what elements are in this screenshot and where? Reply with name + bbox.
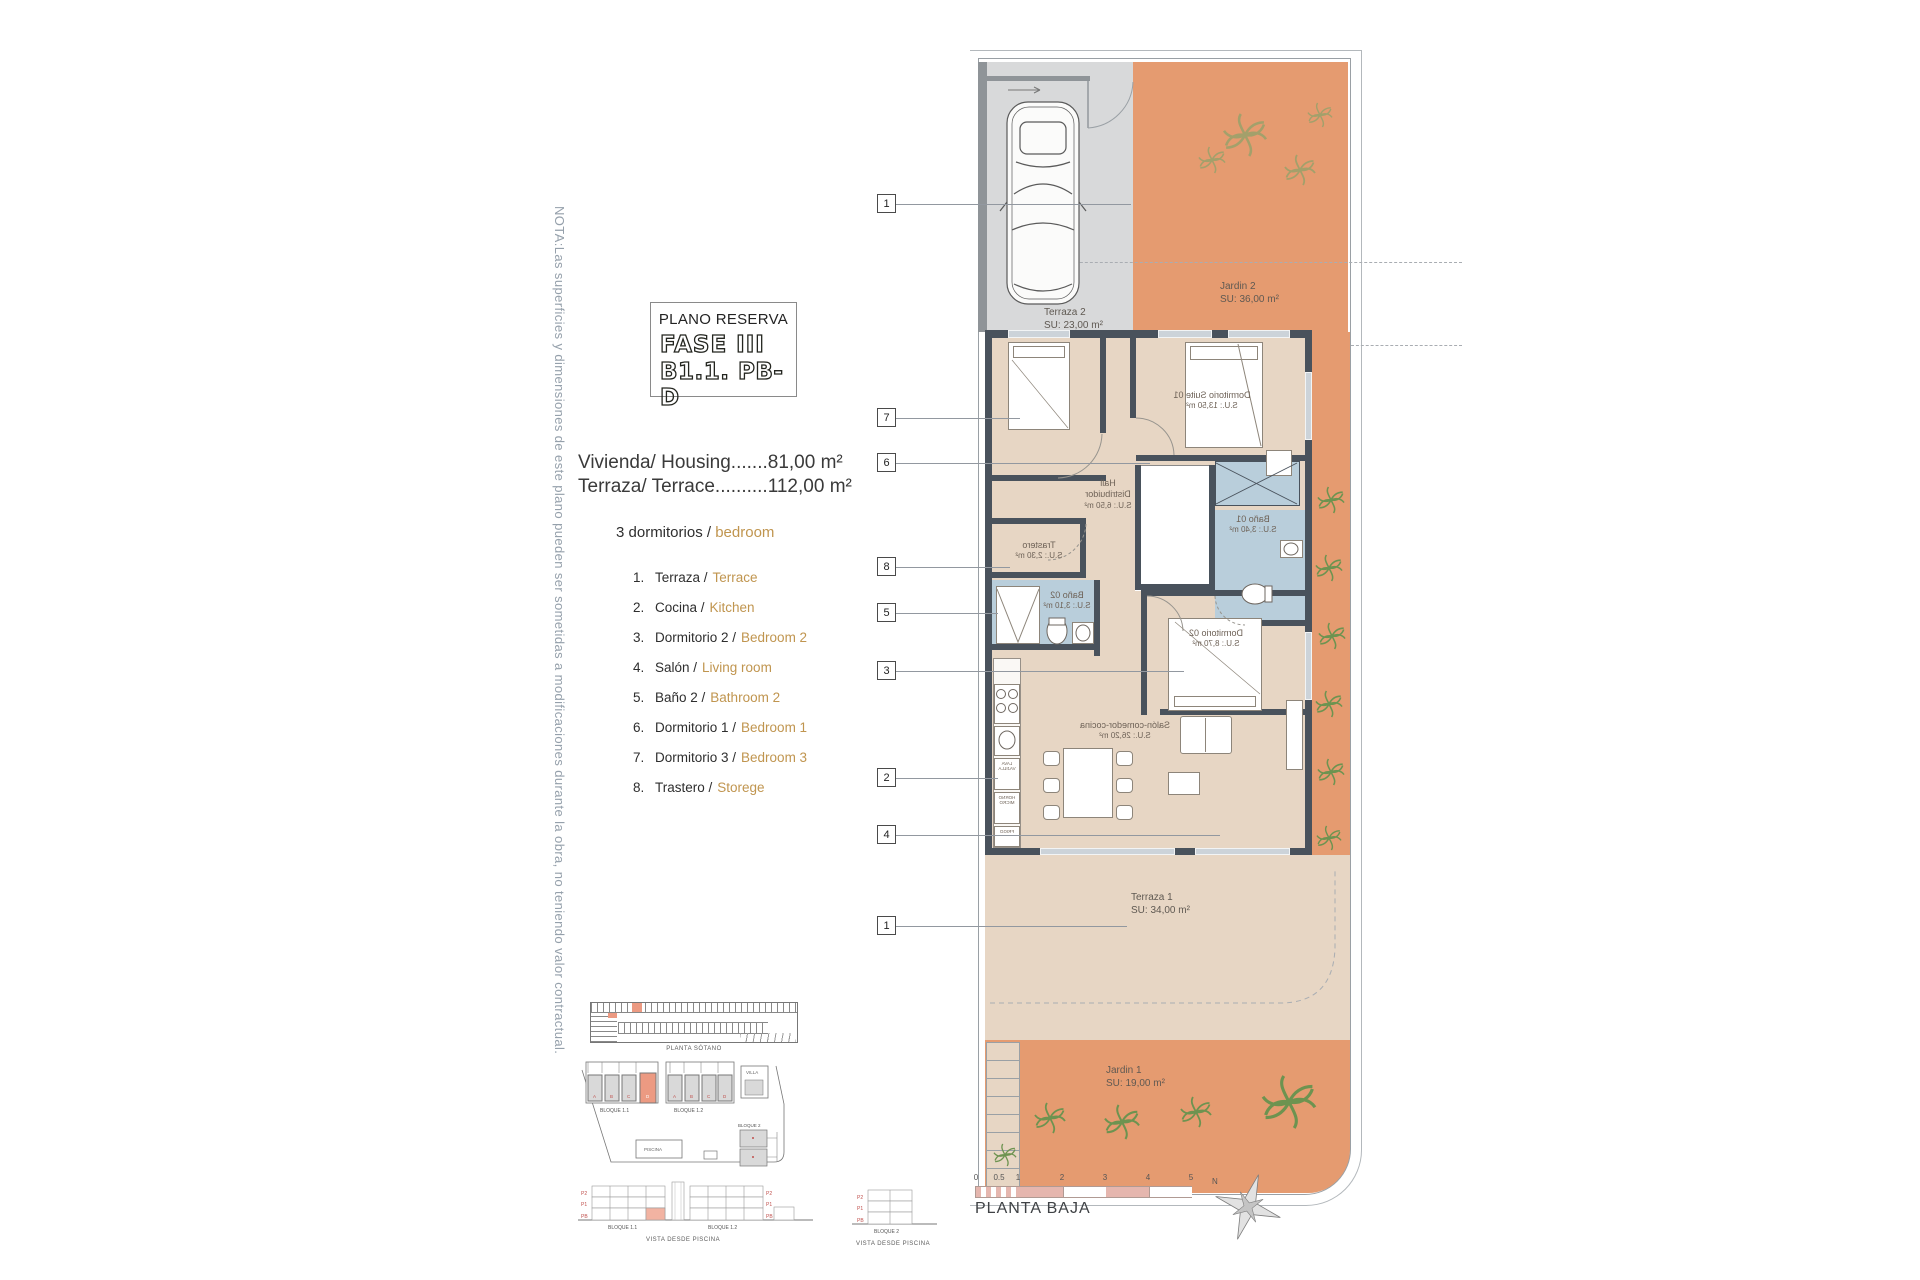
svg-text:C: C [707,1094,711,1099]
parking-top-wall [978,76,1090,81]
bath1-sink [1280,540,1303,558]
jardin2-label: Jardin 2SU: 36,00 m² [1220,280,1279,306]
legend-item: 3. Dormitorio 2 / Bedroom 2 [633,630,893,660]
basement-stalls-top [591,1003,797,1013]
scale-bar [975,1186,1192,1198]
scale-tick: 0 [974,1173,978,1182]
callout-leader [896,567,1010,568]
callout-leader [896,613,998,614]
stair-core [1135,465,1215,591]
terrace-area-line: Terraza/ Terrace..........112,00 m² [578,476,852,498]
callout-bedroom3: 7 [877,408,896,427]
dorm2-label: Dormitorio 02S.U.: 8,70 m² [1178,628,1254,649]
legend-item: 2. Cocina / Kitchen [633,600,893,630]
scale-tick: 2 [1060,1173,1064,1182]
slider-living-2 [1195,848,1290,855]
dining-chair [1116,805,1133,820]
bath2-sink [1072,622,1094,644]
trastero-label: TrasteroS.U.: 2,30 m² [1008,540,1070,561]
suite-label: Dormitorio Suite 01S.U.: 13,50 m² [1160,390,1264,411]
hall-label: HallDistribuidorS.U.: 6,50 m² [1078,478,1138,511]
basement-caption: PLANTA SÓTANO [590,1046,798,1052]
callout-leader [896,926,1127,927]
dining-table [1063,748,1113,818]
basement-highlight-cell-2 [608,1013,617,1018]
floor-title: PLANTA BAJA [975,1200,1091,1218]
scale-segment [1063,1187,1107,1197]
title-block: PLANO RESERVA FASE III B1.1. PB-D [650,302,797,397]
terraza1-label: Terraza 1SU: 34,00 m² [1131,891,1190,917]
bedrooms-es: 3 dormitorios / [616,524,711,541]
plan-subtitle: PLANO RESERVA [651,311,796,328]
svg-text:C: C [627,1094,631,1099]
dining-chair [1116,778,1133,793]
suite-nightstand [1266,450,1292,476]
svg-text:BLOQUE 2: BLOQUE 2 [874,1229,899,1235]
dorm2-left-wall [1141,596,1147,715]
dwelling-left-wall [985,332,992,855]
kitchen-cooktop [994,684,1020,724]
dorm2-top-wall [1141,590,1306,596]
plan-disclaimer-note: NOTA:Las superficies y dimensiones de es… [552,206,567,1091]
svg-text:B: B [610,1094,613,1099]
bath1-label: Baño 01S.U.: 3,40 m² [1222,514,1284,535]
bedrooms-line: 3 dormitorios / bedroom [616,524,774,541]
wall-suite-left [1130,338,1136,418]
parking-left-wall [978,62,987,332]
scale-tick: 3 [1103,1173,1107,1182]
mini-elevation-bloque2: P2 P1 PB BLOQUE 2 VISTA DESDE PISCINA [852,1186,937,1252]
bloque2-label: BLOQUE 2 [738,1123,761,1128]
housing-area-line: Vivienda/ Housing.......81,00 m² [578,452,843,474]
window-right-suite [1305,372,1312,440]
sofa [1180,716,1232,754]
suite-pillow [1190,346,1258,360]
svg-text:B: B [690,1094,693,1099]
terraza2-label: Terraza 2SU: 23,00 m² [1044,306,1103,332]
plan-overlay-graphics: N [0,0,1920,1280]
callout-leader [896,204,1131,205]
basement-highlight-cell [632,1003,642,1012]
legend-item: 4. Salón / Living room [633,660,893,690]
scale-subdivisions [976,1187,1020,1197]
coffee-table [1168,772,1200,795]
svg-text:P2: P2 [581,1191,587,1197]
dining-chair [1043,805,1060,820]
dining-chair [1043,778,1060,793]
bathroom-2-bottom-wall [992,644,1100,650]
scale-tick: 5 [1189,1173,1193,1182]
window-suite-1 [1158,330,1212,338]
vista-caption: VISTA DESDE PISCINA [646,1237,720,1243]
slider-living-1 [1040,848,1175,855]
scale-segment [1106,1187,1149,1197]
callout-kitchen: 2 [877,768,896,787]
svg-text:P1: P1 [857,1206,863,1212]
kitchen-sink [994,726,1020,756]
callout-bedroom1: 6 [877,453,896,472]
bloque11-label: BLOQUE 1.1 [600,1108,629,1114]
salon-label: Salón-comedor-cocinaS.U.: 26,20 m² [1072,720,1178,741]
scale-tick: 0.5 [993,1173,1004,1182]
unit-title: B1.1. PB-D [660,359,796,411]
svg-text:BLOQUE 1.2: BLOQUE 1.2 [708,1225,737,1231]
phase-title: FASE III [660,332,796,358]
jardin1-label: Jardin 1SU: 19,00 m² [1106,1064,1165,1090]
svg-text:D: D [723,1094,727,1099]
fridge-label: FRIGO [995,829,1019,834]
bath2-shower [996,586,1040,644]
bedrooms-en: bedroom [715,524,774,541]
callout-terrace2: 1 [877,194,896,213]
mini-basement-plan: PLANTA SÓTANO [590,1002,800,1058]
svg-text:PB: PB [857,1218,864,1224]
kitchen-dishwasher: LAVAVAJILLA [994,758,1020,790]
room-legend: 1. Terraza / Terrace 2. Cocina / Kitchen… [633,570,893,810]
svg-text:D: D [646,1094,650,1099]
svg-text:P2: P2 [857,1195,863,1201]
dorm2-pillow [1174,696,1256,707]
callout-leader [896,778,998,779]
scale-tick: 1 [1016,1173,1020,1182]
wall-bedroom3-right [1100,338,1106,433]
svg-text:PB: PB [581,1214,588,1220]
kitchen-fridge: FRIGO [994,826,1020,847]
callout-bathroom2: 5 [877,603,896,622]
callout-leader [896,671,1184,672]
basement-ramp [740,1033,796,1042]
dining-chair [1043,751,1060,766]
svg-text:VISTA DESDE PISCINA: VISTA DESDE PISCINA [856,1241,930,1247]
piscina-label: PISCINA [644,1147,662,1152]
callout-living: 4 [877,825,896,844]
scale-segment [1019,1187,1063,1197]
sofa-cushion-line [1205,718,1206,752]
bath2-label: Baño 02S.U.: 3,10 m² [1040,590,1094,611]
legend-item: 7. Dormitorio 3 / Bedroom 3 [633,750,893,780]
callout-leader [896,418,1020,419]
dining-chair [1116,751,1133,766]
legend-item: 1. Terraza / Terrace [633,570,893,600]
legend-item: 8. Trastero / Storege [633,780,893,810]
dashed-property-line-lower [1351,345,1462,346]
kitchen-oven: HORNOMICRO [994,792,1020,824]
svg-text:PB: PB [766,1214,773,1220]
svg-text:P1: P1 [581,1202,587,1208]
mini-site-plan: A B C D A B C D VILLA BLOQUE 1.1 BLOQUE … [578,1058,793,1173]
callout-leader [896,835,1220,836]
villa-label: VILLA [746,1070,758,1075]
svg-text:P2: P2 [766,1191,772,1197]
dashed-property-line-upper [1015,262,1462,263]
oven-label: HORNOMICRO [995,795,1019,805]
scale-segment [1149,1187,1192,1197]
tv-unit [1286,700,1303,770]
trastero-bottom-wall [992,572,1086,578]
callout-leader [896,463,1150,464]
svg-text:A: A [673,1094,676,1099]
svg-text:A: A [593,1094,596,1099]
scale-tick: 4 [1146,1173,1150,1182]
window-right-dorm2 [1305,632,1312,700]
legend-item: 5. Baño 2 / Bathroom 2 [633,690,893,720]
bloque12-label: BLOQUE 1.2 [674,1108,703,1114]
trastero-top-wall [992,518,1086,524]
svg-text:BLOQUE 1.1: BLOQUE 1.1 [608,1225,637,1231]
dishwasher-label: LAVAVAJILLA [995,761,1019,771]
legend-item: 6. Dormitorio 1 / Bedroom 1 [633,720,893,750]
callout-terrace1: 1 [877,916,896,935]
callout-bedroom2: 3 [877,661,896,680]
trastero-right-wall [1080,518,1086,578]
mini-elevation-blocks: P2 P1 PB P2 P1 PB BLOQUE 1.1 BLOQUE 1.2 … [578,1180,813,1246]
window-suite-2 [1228,330,1290,338]
bedroom3-pillow [1013,346,1065,358]
callout-storage: 8 [877,557,896,576]
svg-text:P1: P1 [766,1202,772,1208]
